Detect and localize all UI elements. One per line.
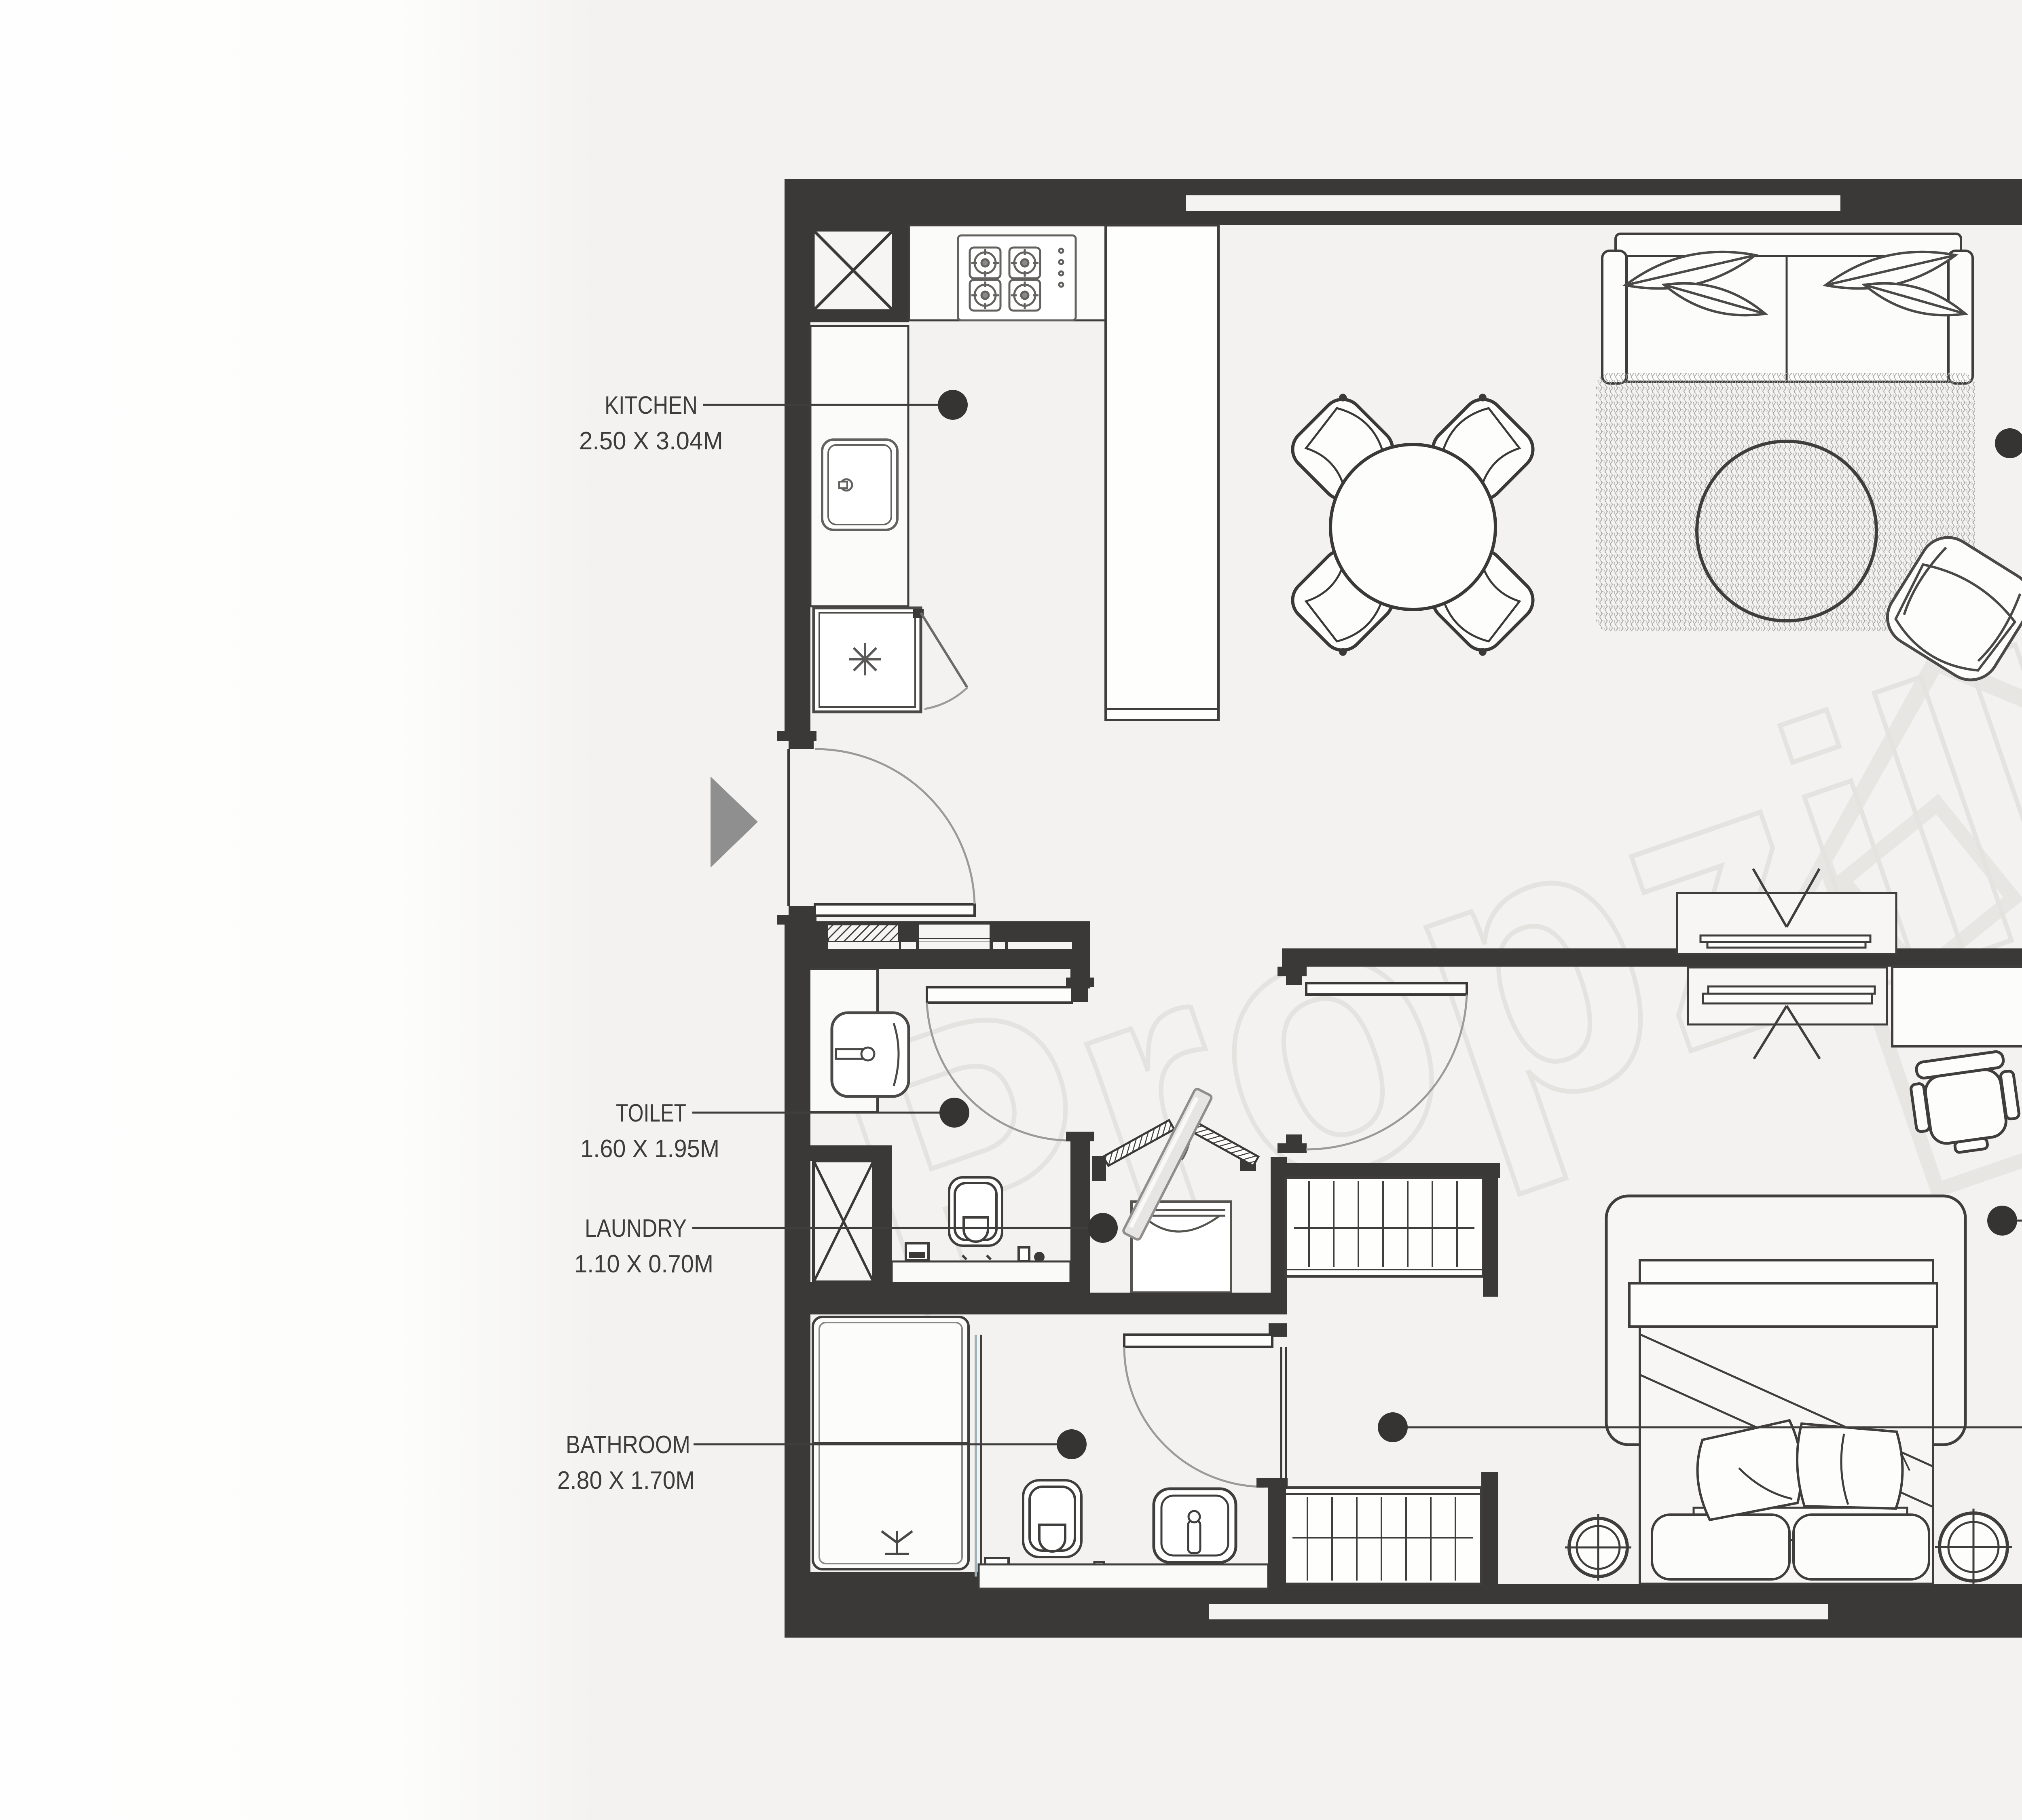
svg-text:2.50 X 3.04M: 2.50 X 3.04M (579, 427, 723, 455)
svg-text:1.60 X 1.95M: 1.60 X 1.95M (580, 1135, 719, 1163)
svg-text:BATHROOM: BATHROOM (566, 1431, 690, 1459)
svg-text:2.80 X 1.70M: 2.80 X 1.70M (557, 1467, 695, 1494)
svg-text:1.10 X 0.70M: 1.10 X 0.70M (574, 1250, 713, 1278)
svg-text:KITCHEN: KITCHEN (605, 392, 698, 419)
svg-text:TOILET: TOILET (616, 1099, 686, 1127)
svg-text:LAUNDRY: LAUNDRY (585, 1215, 687, 1242)
